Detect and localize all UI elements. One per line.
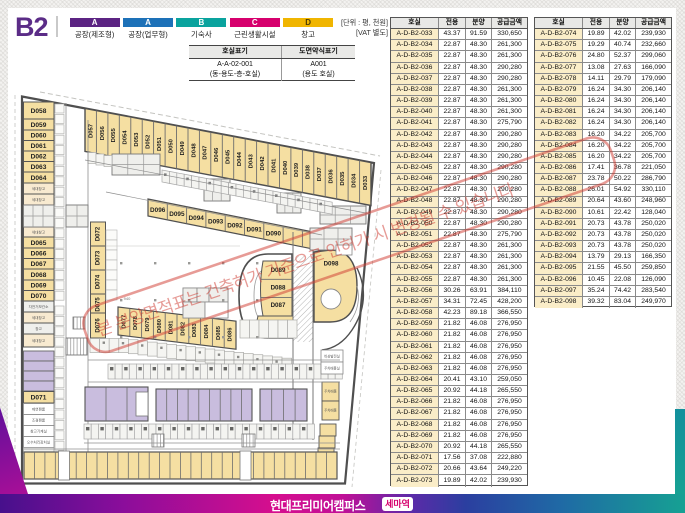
svg-text:창고기계실: 창고기계실 — [30, 428, 47, 433]
svg-text:D037: D037 — [317, 166, 323, 181]
svg-text:D056: D056 — [100, 125, 106, 140]
svg-text:세대창고: 세대창고 — [32, 197, 46, 202]
svg-text:D064: D064 — [31, 175, 47, 182]
svg-text:D052: D052 — [145, 134, 151, 149]
svg-text:D053: D053 — [134, 132, 140, 147]
svg-text:D068: D068 — [31, 272, 47, 279]
svg-text:D057: D057 — [88, 123, 94, 138]
svg-text:D036: D036 — [329, 169, 335, 184]
svg-text:D035: D035 — [340, 171, 346, 186]
svg-text:D034: D034 — [351, 173, 357, 188]
svg-text:D058: D058 — [31, 108, 47, 115]
svg-text:D093: D093 — [208, 219, 224, 226]
svg-text:D095: D095 — [169, 211, 185, 218]
svg-text:D074: D074 — [96, 274, 102, 289]
svg-text:D092: D092 — [227, 223, 243, 230]
svg-text:D046: D046 — [214, 147, 220, 162]
svg-text:D091: D091 — [247, 226, 263, 233]
svg-text:D050: D050 — [168, 138, 174, 153]
svg-text:D061: D061 — [31, 143, 47, 150]
svg-text:세대창고: 세대창고 — [32, 186, 46, 191]
svg-text:D086: D086 — [228, 327, 234, 342]
svg-text:D040: D040 — [283, 160, 289, 175]
svg-text:주차배풍: 주차배풍 — [324, 388, 336, 393]
svg-text:D033: D033 — [363, 175, 369, 190]
svg-text:D070: D070 — [31, 293, 47, 300]
svg-text:D045: D045 — [226, 149, 232, 164]
svg-text:D063: D063 — [31, 164, 47, 171]
svg-text:D072: D072 — [96, 226, 102, 241]
svg-text:D048: D048 — [191, 143, 197, 158]
svg-text:제연팬룸: 제연팬룸 — [32, 406, 46, 411]
svg-text:D059: D059 — [31, 122, 47, 129]
svg-text:D066: D066 — [31, 251, 47, 258]
svg-text:D084: D084 — [204, 324, 210, 339]
svg-text:D042: D042 — [260, 156, 266, 171]
svg-text:주차배풍: 주차배풍 — [324, 407, 336, 412]
svg-text:D041: D041 — [271, 158, 277, 173]
svg-text:D043: D043 — [248, 154, 254, 169]
svg-text:D049: D049 — [180, 141, 186, 156]
svg-text:D090: D090 — [266, 230, 282, 237]
svg-text:D062: D062 — [31, 154, 47, 161]
svg-text:D080: D080 — [157, 319, 163, 333]
svg-text:D067: D067 — [31, 261, 47, 268]
svg-text:D096: D096 — [150, 207, 166, 214]
svg-text:D073: D073 — [96, 250, 102, 265]
svg-text:D083: D083 — [192, 322, 198, 337]
svg-text:D082: D082 — [180, 322, 186, 336]
svg-text:D094: D094 — [189, 215, 205, 222]
svg-text:D071: D071 — [31, 395, 47, 402]
svg-text:D087: D087 — [271, 302, 286, 309]
svg-text:D054: D054 — [123, 130, 129, 145]
svg-text:D085: D085 — [216, 325, 222, 340]
svg-text:비상발전실: 비상발전실 — [324, 353, 340, 358]
svg-text:D051: D051 — [157, 136, 163, 151]
svg-text:자전거보관소: 자전거보관소 — [29, 304, 50, 309]
svg-text:세대창고: 세대창고 — [32, 315, 46, 320]
svg-text:D055: D055 — [111, 128, 117, 143]
svg-text:D065: D065 — [31, 240, 47, 247]
svg-text:D038: D038 — [306, 164, 312, 179]
svg-text:D060: D060 — [31, 133, 47, 140]
svg-text:D088: D088 — [271, 285, 286, 292]
svg-text:D039: D039 — [294, 162, 300, 177]
svg-text:세대창고: 세대창고 — [32, 338, 46, 343]
svg-text:주차배풍실: 주차배풍실 — [324, 365, 340, 370]
svg-text:D069: D069 — [31, 283, 47, 290]
svg-text:오수처리장치실: 오수처리장치실 — [27, 439, 50, 444]
svg-text:D047: D047 — [203, 145, 209, 160]
svg-text:조경팬룸: 조경팬룸 — [32, 417, 46, 422]
svg-text:창고: 창고 — [35, 326, 42, 331]
svg-text:D044: D044 — [237, 151, 243, 166]
svg-text:세대창고: 세대창고 — [32, 229, 46, 234]
